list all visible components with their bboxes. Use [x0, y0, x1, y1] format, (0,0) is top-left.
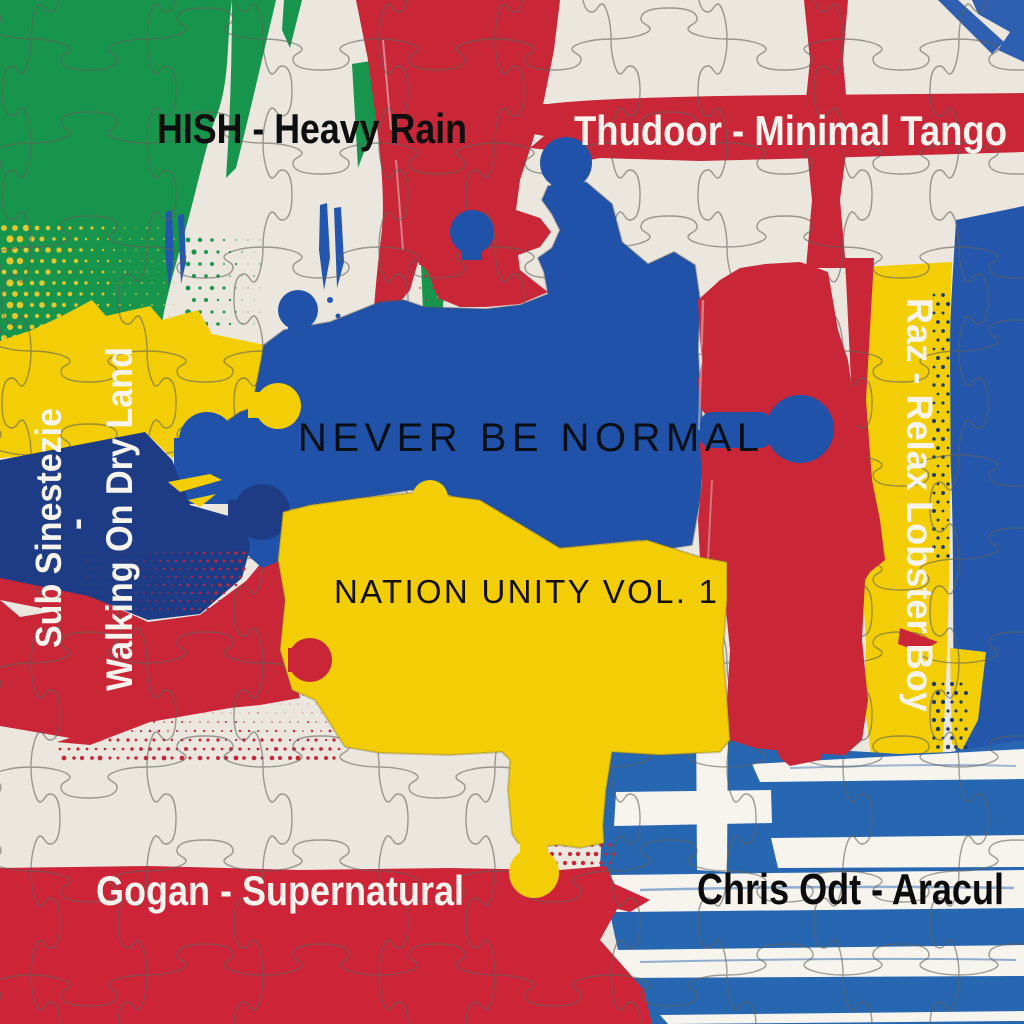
- svg-text:HISH - Heavy Rain: HISH - Heavy Rain: [157, 105, 467, 152]
- svg-text:Thudoor - Minimal Tango: Thudoor - Minimal Tango: [574, 107, 1007, 154]
- svg-text:NATION UNITY VOL. 1: NATION UNITY VOL. 1: [334, 573, 720, 610]
- svg-text:Gogan - Supernatural: Gogan - Supernatural: [96, 867, 464, 914]
- svg-text:NEVER BE NORMAL: NEVER BE NORMAL: [298, 416, 763, 460]
- svg-text:Chris Odt - Aracul: Chris Odt - Aracul: [697, 865, 1004, 914]
- svg-text:-: -: [55, 518, 96, 530]
- svg-text:Walking On Dry Land: Walking On Dry Land: [99, 347, 140, 691]
- svg-text:Raz - Relax Lobster Boy: Raz - Relax Lobster Boy: [899, 298, 940, 712]
